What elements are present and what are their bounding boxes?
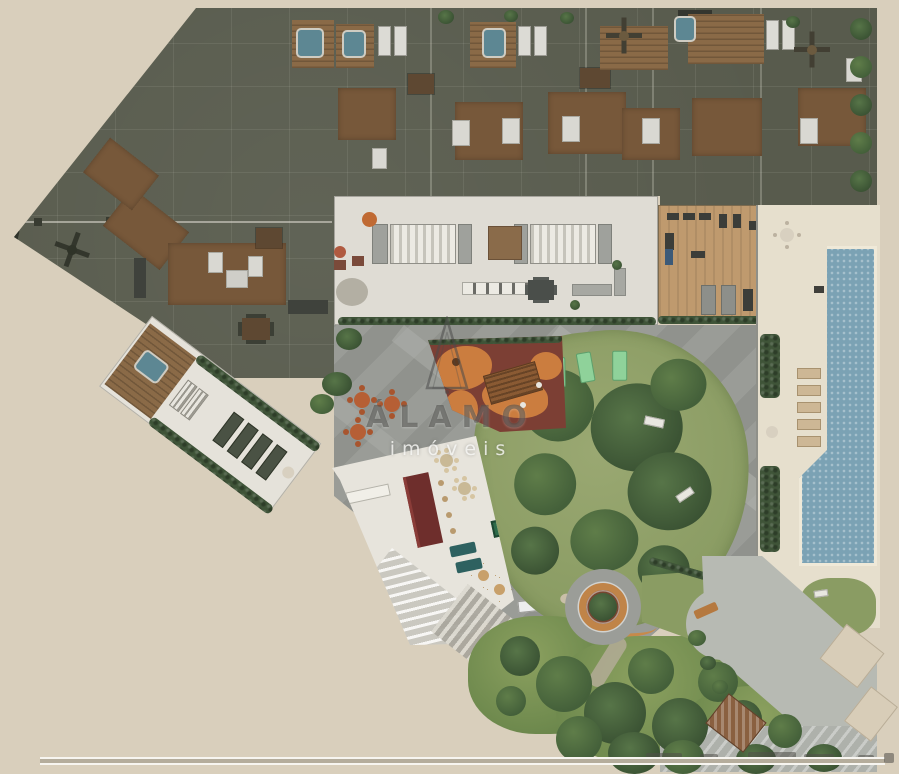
pool-lounger: [797, 368, 821, 379]
party-table: [478, 570, 489, 581]
bar-stool: [446, 512, 452, 518]
driveway-hedge-shrub: [712, 680, 728, 694]
star-dining-set: [458, 482, 471, 495]
edge-tree: [850, 170, 872, 192]
round-orange-rug: [362, 212, 377, 227]
edge-tree: [850, 56, 872, 78]
sun-lounger: [378, 26, 391, 56]
table-center: [807, 45, 817, 55]
garden-tree: [556, 716, 602, 762]
rooftop-plant: [438, 10, 454, 24]
staircase: [390, 224, 456, 264]
rooftop-plant: [786, 16, 800, 28]
site-plan-render: ÁLAMO imóveis: [0, 0, 899, 774]
pool-lounger: [797, 402, 821, 413]
pool-lounger: [797, 436, 821, 447]
lounge-rug: [336, 278, 368, 306]
gym-equipment: [667, 213, 679, 220]
sun-lounger: [534, 26, 547, 56]
bed: [642, 118, 660, 144]
patio-table-orange: [350, 424, 366, 440]
rooftop-plant: [504, 10, 518, 22]
deck-planter-hedge: [760, 466, 780, 552]
deck-table: [780, 228, 794, 242]
amenities-hedge-strip: [338, 317, 656, 326]
apartment-wood-floor: [548, 92, 626, 154]
apartment-wood-floor: [338, 88, 396, 140]
round-red-rug: [334, 246, 346, 258]
watermark-tagline-text: imóveis: [368, 438, 534, 460]
logo-dot: [445, 390, 449, 394]
lawn-tree: [567, 506, 641, 575]
armchair: [352, 256, 364, 266]
elevator-shaft: [458, 224, 472, 264]
table-center: [619, 31, 629, 41]
bar-stool: [442, 496, 448, 502]
bar-stool: [438, 480, 444, 486]
gym-lounger: [701, 285, 716, 315]
kitchen-counter-dark: [288, 300, 328, 314]
weight-bench: [691, 251, 705, 258]
lounge-sofa: [614, 268, 626, 296]
treadmill: [719, 214, 727, 228]
pool-mat: [814, 286, 824, 293]
sun-lounger: [394, 26, 407, 56]
bed: [562, 116, 580, 142]
logo-inner-triangle: [433, 332, 461, 388]
alamo-poplar-triangle-logo-icon: [424, 316, 470, 394]
outdoor-cross-table: [794, 34, 830, 66]
rooftop-deck: [688, 14, 764, 64]
scalebar-end-tick: [884, 753, 894, 763]
entry-object: [4, 247, 11, 254]
sun-lounger: [766, 20, 779, 50]
dining-table: [580, 68, 610, 88]
kitchen-counter: [462, 282, 530, 295]
gym-wood-floor: [658, 205, 764, 320]
coworking-table: [528, 280, 554, 300]
gym-equipment: [683, 213, 695, 220]
apartment-wood-floor: [692, 98, 762, 156]
hot-tub: [674, 16, 696, 42]
elevator-shaft: [598, 224, 612, 264]
logo-triangle-outline: [427, 319, 467, 388]
dining-table: [256, 228, 282, 248]
planter-tree: [589, 593, 617, 621]
play-spring-toy: [536, 382, 542, 388]
dining-table: [408, 74, 434, 94]
lawn-tree: [509, 524, 562, 577]
elevator-shaft: [372, 224, 388, 264]
bed: [452, 120, 470, 146]
patio-shrub: [322, 372, 352, 396]
hot-tub: [296, 28, 324, 58]
pool-lounger: [797, 385, 821, 396]
gym-equipment: [665, 233, 674, 250]
edge-tree: [850, 94, 872, 116]
lounge-sofa: [572, 284, 612, 296]
lawn-lounger-mint: [612, 351, 627, 381]
armchair: [334, 260, 346, 270]
bed: [800, 118, 818, 144]
garden-tree: [768, 714, 802, 748]
teal-sofa: [449, 541, 477, 557]
bed: [248, 256, 263, 277]
corridor-planter: [34, 218, 42, 226]
driveway-curve: [686, 588, 758, 660]
sun-lounger: [518, 26, 531, 56]
deck-table: [766, 426, 778, 438]
gym-hedge-strip: [658, 316, 764, 324]
patio-shrub: [310, 394, 334, 414]
hot-tub: [482, 28, 506, 58]
bed: [502, 118, 520, 144]
driveway-hedge-shrub: [688, 630, 706, 646]
lawn-tree: [511, 450, 579, 518]
garden-tree: [500, 636, 540, 676]
bed: [372, 148, 387, 169]
gym-equipment: [699, 213, 711, 220]
bathroom-fixture: [226, 270, 248, 288]
gym-lounger: [721, 285, 736, 315]
deck-planter-hedge: [760, 334, 780, 398]
garden-tree: [536, 656, 592, 712]
hot-tub: [342, 30, 366, 58]
indoor-plant: [570, 300, 580, 310]
bar-stool: [450, 528, 456, 534]
watermark-brand-text: ÁLAMO: [366, 400, 536, 435]
garden-tree: [496, 686, 526, 716]
party-table: [494, 584, 505, 595]
gym-equipment: [743, 289, 753, 311]
edge-tree: [850, 132, 872, 154]
exercise-mat: [665, 249, 673, 265]
outdoor-dining-table: [242, 318, 270, 340]
bed: [208, 252, 223, 273]
treadmill: [733, 214, 741, 228]
staircase: [530, 224, 596, 264]
driveway-hedge-shrub: [700, 656, 716, 670]
unit-divider-wall: [430, 8, 432, 196]
pool-lounger: [797, 419, 821, 430]
garden-tree: [628, 648, 674, 694]
outdoor-cross-table: [606, 20, 642, 52]
scale-bar: [40, 757, 885, 765]
edge-tree: [850, 18, 872, 40]
entry-object: [7, 229, 20, 246]
pantry-shelves: [488, 226, 522, 260]
terrace-side-table: [280, 464, 297, 481]
courtyard-shrub: [336, 328, 362, 350]
kitchen-counter-dark: [134, 258, 146, 298]
indoor-plant: [612, 260, 622, 270]
sideboard-cabinets: [345, 484, 391, 505]
rooftop-plant: [560, 12, 574, 24]
